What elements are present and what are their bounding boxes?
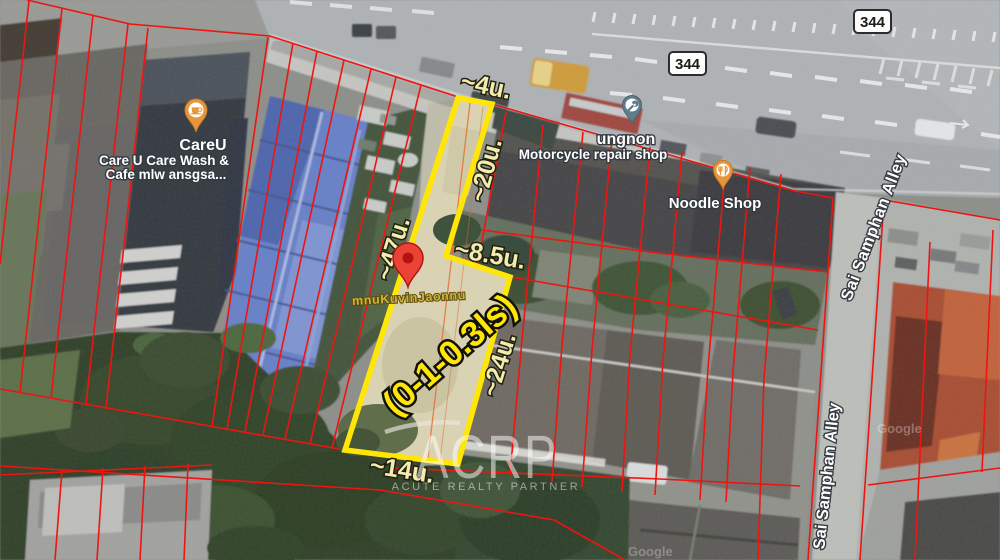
svg-text:ACUTE REALTY PARTNER: ACUTE REALTY PARTNER bbox=[392, 481, 581, 493]
svg-text:Motorcycle repair shop: Motorcycle repair shop bbox=[519, 147, 668, 162]
svg-text:344: 344 bbox=[860, 14, 886, 31]
svg-text:Noodle Shop: Noodle Shop bbox=[669, 195, 762, 212]
svg-text:Cafe mlw ansgsa...: Cafe mlw ansgsa... bbox=[106, 167, 227, 182]
svg-text:344: 344 bbox=[675, 56, 701, 73]
svg-text:ungnon: ungnon bbox=[597, 131, 656, 148]
svg-text:Google: Google bbox=[628, 544, 673, 559]
svg-text:CareU: CareU bbox=[179, 137, 226, 154]
svg-text:Care U Care Wash &: Care U Care Wash & bbox=[99, 153, 229, 168]
svg-text:Google: Google bbox=[877, 421, 922, 436]
